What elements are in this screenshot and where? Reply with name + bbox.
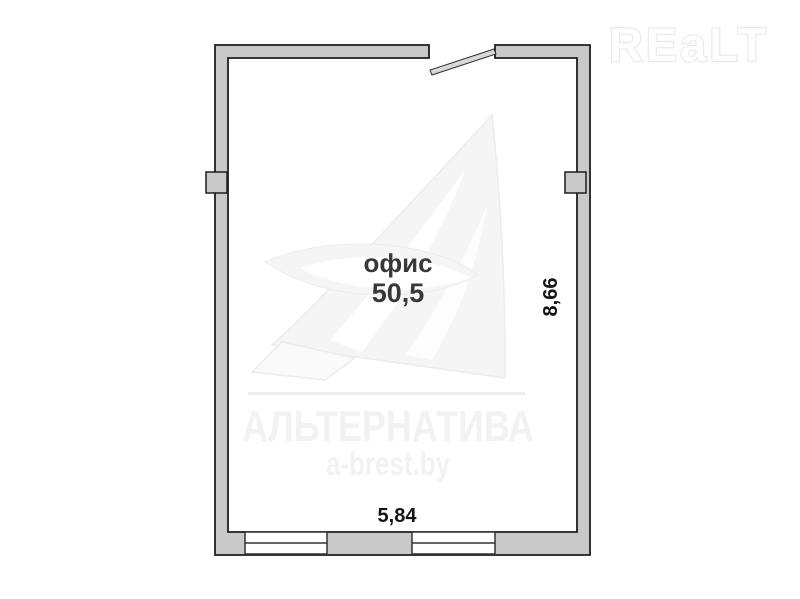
realt-logo: REaLT	[609, 18, 769, 71]
dimension-bottom-width: 5,84	[378, 505, 418, 527]
wall-pilaster-left	[206, 172, 227, 193]
floor-plan: АЛЬТЕРНАТИВА a-brest.by REaLT офис 50,5 …	[0, 0, 800, 599]
watermark-agency-name: АЛЬТЕРНАТИВА	[242, 402, 534, 451]
floorplan-image: АЛЬТЕРНАТИВА a-brest.by REaLT офис 50,5 …	[0, 0, 800, 599]
room-area-label: 50,5	[372, 278, 425, 308]
wall-pilaster-right	[565, 172, 586, 193]
sail-baseline	[248, 392, 525, 395]
door-leaf-icon	[430, 49, 496, 75]
window-bottom-right-icon	[412, 532, 495, 554]
dimension-right-height: 8,66	[540, 278, 562, 317]
watermark-site-url: a-brest.by	[326, 445, 451, 482]
window-bottom-left-icon	[245, 532, 327, 554]
room-name-label: офис	[363, 248, 432, 278]
